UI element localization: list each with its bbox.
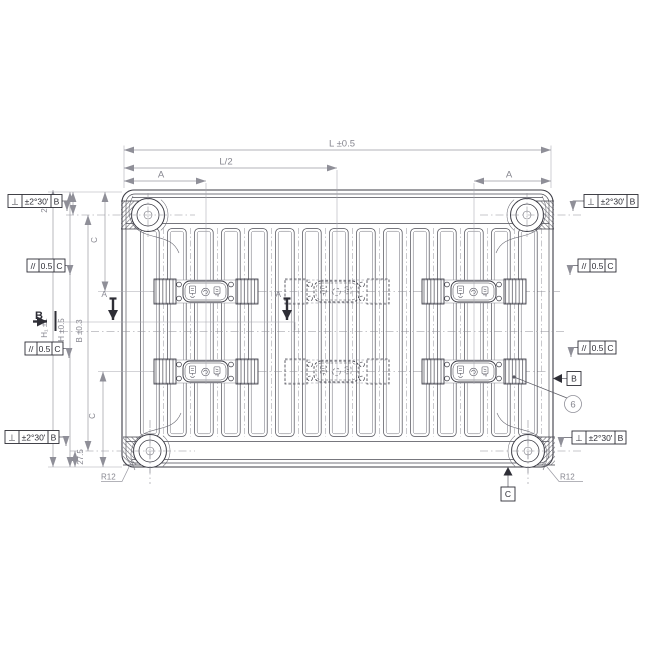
svg-text:B: B [54,197,60,207]
dim-hub-distance: B ±0.3 [75,319,84,343]
dim-c-top: C [90,237,99,243]
section-b-label: B [35,310,43,322]
svg-text:C: C [54,344,60,354]
svg-text:⊥: ⊥ [575,433,583,443]
dim-overall-length: L ±0.5 [329,139,355,150]
svg-text:±2°30': ±2°30' [22,433,46,443]
fcf-parallelism-right-lower: // 0.5 C [571,341,616,357]
section-a-label-right: A [275,289,281,299]
svg-text:B: B [51,433,57,443]
svg-text:0.5: 0.5 [592,261,604,271]
svg-text:B: B [630,197,636,207]
fcf-perpendicularity-top-left: ⊥ ±2°30' B [8,195,67,212]
datum-c-flag: C [501,467,515,501]
radiator-technical-drawing: { "drawing": { "dimensions": { "top": { … [0,0,650,650]
svg-text://: // [29,344,34,354]
section-a-label-left: A [101,289,107,299]
dim-c-bottom: C [88,413,97,419]
svg-text:C: C [607,261,613,271]
fcf-perpendicularity-bottom-right: ⊥ ±2°30' B [561,431,626,447]
svg-text:±2°30': ±2°30' [589,433,613,443]
balloon-number: 6 [570,400,575,411]
fcf-parallelism-left-lower: // 0.5 C [25,342,69,358]
radius-label-left: R12 [101,463,131,482]
svg-text:⊥: ⊥ [587,197,595,207]
svg-text:±2°30': ±2°30' [601,197,625,207]
dim-a-right: A [506,170,513,181]
convection-ribs [140,228,544,437]
datum-b-flag: B [553,372,581,386]
drawing-canvas: L ±0.5 L/2 A A 27.5 C H₁ ±1 H ±0.5 B ±0.… [0,0,650,650]
perp-symbol: ⊥ [11,197,19,207]
svg-text:±2°30': ±2°30' [25,197,49,207]
dim-height: H ±0.5 [57,318,66,342]
dim-a-left: A [158,170,165,181]
fcf-parallelism-left-upper: // 0.5 C [27,259,70,275]
dim-27-5-bottom: 27.5 [76,449,85,465]
par-symbol: // [31,261,36,271]
svg-text:R12: R12 [560,473,575,482]
svg-text://: // [582,261,587,271]
svg-text:B: B [618,433,624,443]
svg-text:⊥: ⊥ [8,433,16,443]
fcf-parallelism-right-upper: // 0.5 C [570,259,616,275]
svg-text:R12: R12 [101,473,116,482]
datum-b-letter: B [571,374,577,384]
dim-half-length: L/2 [219,157,232,168]
fcf-perpendicularity-bottom-left: ⊥ ±2°30' B [5,431,66,447]
svg-text:0.5: 0.5 [592,343,604,353]
svg-text:0.5: 0.5 [39,344,51,354]
datum-c-letter: C [505,489,511,499]
svg-text:0.5: 0.5 [41,261,53,271]
radiator-panel-body [122,190,553,467]
svg-text://: // [582,343,587,353]
svg-text:C: C [56,261,62,271]
svg-text:C: C [607,343,613,353]
fcf-perpendicularity-top-right: ⊥ ±2°30' B [573,195,638,212]
